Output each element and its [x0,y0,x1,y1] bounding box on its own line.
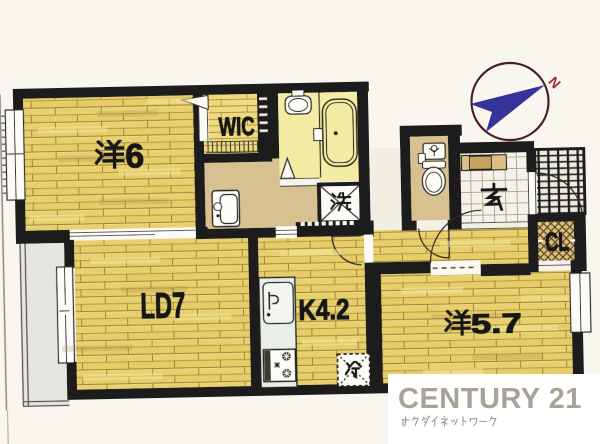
svg-text:WIC: WIC [218,111,255,142]
svg-text:5.7: 5.7 [470,307,522,339]
svg-text:6: 6 [125,137,145,175]
svg-text:LD7: LD7 [140,284,186,326]
svg-text:CENTURY 21: CENTURY 21 [398,383,582,415]
svg-text:K4.2: K4.2 [298,294,350,327]
svg-text:CL: CL [545,226,570,256]
